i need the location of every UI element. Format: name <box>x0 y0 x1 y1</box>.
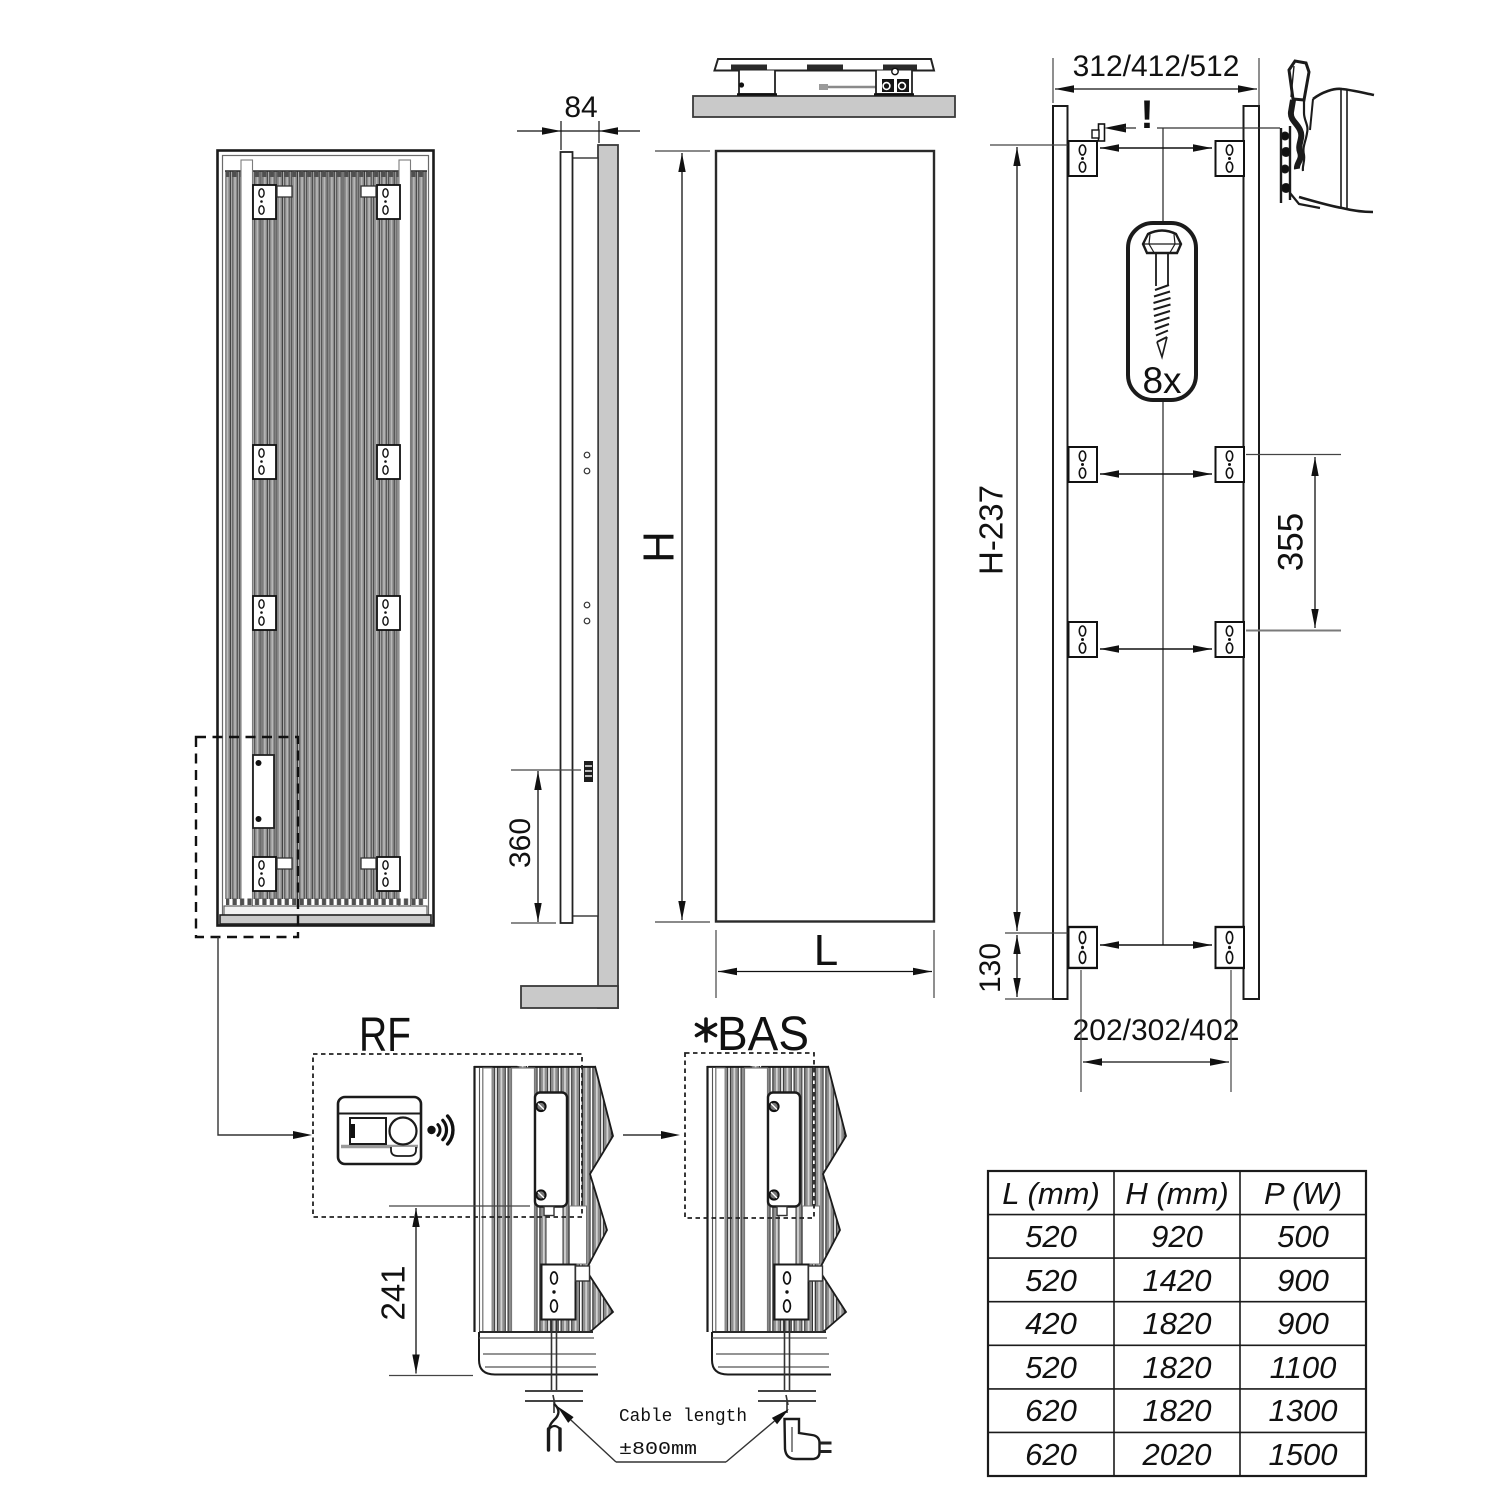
svg-text:H-237: H-237 <box>973 485 1010 575</box>
svg-text:±800mm: ±800mm <box>619 1439 697 1460</box>
svg-text:1820: 1820 <box>1143 1306 1212 1341</box>
svg-text:1500: 1500 <box>1269 1437 1338 1472</box>
svg-text:84: 84 <box>564 91 597 124</box>
svg-text:520: 520 <box>1025 1219 1077 1254</box>
svg-text:L: L <box>814 926 838 975</box>
svg-text:202/302/402: 202/302/402 <box>1073 1014 1240 1047</box>
svg-text:H (mm): H (mm) <box>1125 1176 1228 1211</box>
svg-text:900: 900 <box>1277 1263 1329 1298</box>
svg-text:BAS: BAS <box>717 1008 809 1061</box>
svg-text:355: 355 <box>1271 513 1310 571</box>
svg-text:1100: 1100 <box>1270 1350 1337 1385</box>
svg-text:1420: 1420 <box>1143 1263 1212 1298</box>
svg-text:520: 520 <box>1025 1350 1077 1385</box>
svg-text:H: H <box>635 531 684 563</box>
svg-text:920: 920 <box>1151 1219 1203 1254</box>
svg-text:Cable length: Cable length <box>619 1406 747 1427</box>
svg-text:!: ! <box>1140 93 1153 137</box>
svg-text:241: 241 <box>375 1265 412 1320</box>
svg-text:500: 500 <box>1277 1219 1329 1254</box>
svg-text:360: 360 <box>504 818 537 868</box>
svg-text:8x: 8x <box>1142 360 1182 401</box>
svg-text:520: 520 <box>1025 1263 1077 1298</box>
svg-text:1820: 1820 <box>1143 1393 1212 1428</box>
svg-text:1300: 1300 <box>1269 1393 1338 1428</box>
svg-text:L (mm): L (mm) <box>1002 1176 1100 1211</box>
svg-text:900: 900 <box>1277 1306 1329 1341</box>
svg-text:P (W): P (W) <box>1264 1176 1342 1211</box>
svg-text:420: 420 <box>1025 1306 1077 1341</box>
svg-text:620: 620 <box>1025 1393 1077 1428</box>
svg-text:130: 130 <box>974 943 1007 993</box>
svg-text:620: 620 <box>1025 1437 1077 1472</box>
svg-text:1820: 1820 <box>1143 1350 1212 1385</box>
svg-text:2020: 2020 <box>1142 1437 1212 1472</box>
svg-text:312/412/512: 312/412/512 <box>1073 50 1240 83</box>
